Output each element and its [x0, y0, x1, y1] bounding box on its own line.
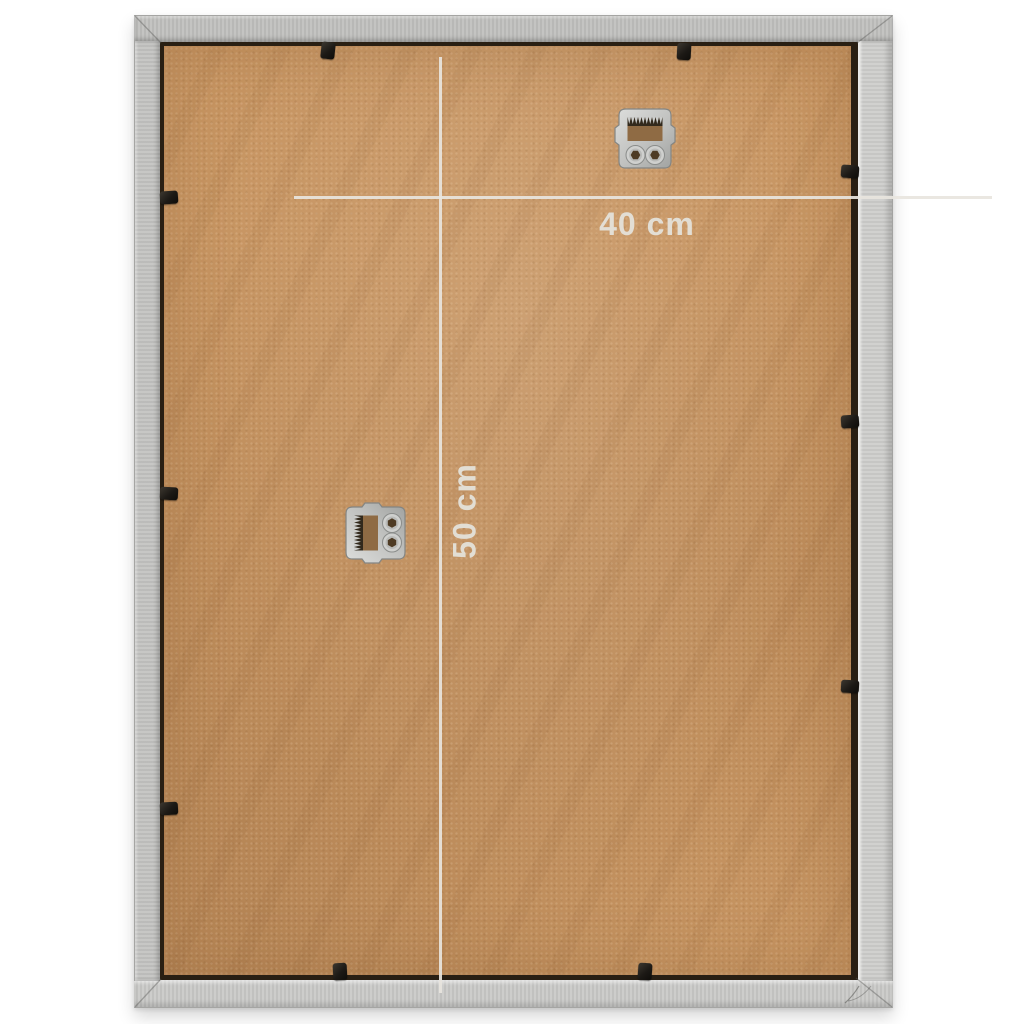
- mdf-backing-board: [160, 42, 858, 980]
- retainer-clip-right-2: [841, 414, 860, 428]
- retainer-clip-top-2: [677, 43, 692, 61]
- height-dimension-label: 50 cm: [447, 463, 484, 559]
- retainer-clip-top-1: [320, 41, 336, 59]
- retainer-clip-bottom-1: [333, 963, 348, 981]
- retainer-clip-right-1: [841, 164, 860, 178]
- retainer-clip-bottom-2: [637, 963, 652, 981]
- retainer-clip-left-3: [160, 802, 179, 816]
- height-dimension-line: [439, 57, 442, 993]
- frame-edge-top: [134, 15, 893, 42]
- frame-edge-bottom: [134, 980, 893, 1008]
- retainer-clip-left-2: [160, 487, 179, 501]
- retainer-clip-left-1: [160, 190, 179, 204]
- width-dimension-label: 40 cm: [587, 206, 707, 243]
- frame-edge-left: [134, 41, 160, 981]
- product-photo: 40 cm 50 cm: [0, 0, 1024, 1024]
- width-dimension-line: [294, 196, 992, 199]
- sawtooth-hanger-top: [612, 106, 678, 170]
- picture-frame-back: 40 cm 50 cm: [134, 15, 893, 1008]
- sawtooth-hanger-left: [343, 500, 407, 566]
- frame-edge-right: [858, 41, 893, 981]
- retainer-clip-right-3: [841, 680, 860, 694]
